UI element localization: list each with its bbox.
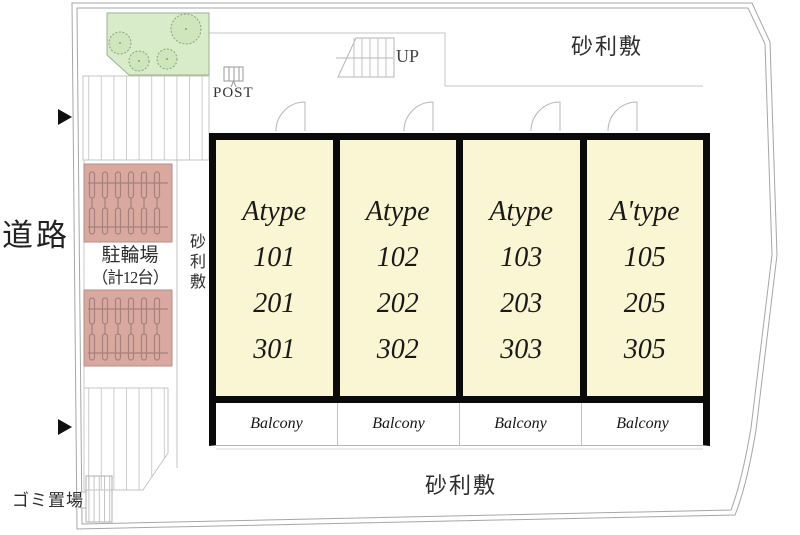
stairs-up-label: UP — [396, 46, 419, 67]
unit-cell-103: Atype 103 203 303 — [463, 140, 580, 396]
bike-rack-upper — [84, 164, 172, 242]
balcony-cell: Balcony — [216, 403, 338, 445]
site-plan: Atype 101 201 301 Atype 102 202 302 Atyp… — [0, 0, 800, 535]
building: Atype 101 201 301 Atype 102 202 302 Atyp… — [209, 133, 710, 403]
room-number: 201 — [253, 281, 295, 327]
door-arc-icon — [608, 102, 637, 131]
room-number: 102 — [377, 235, 419, 281]
bicycle-parking-label: 駐輪場 （計12台） — [83, 245, 177, 289]
road-label: 道路 — [2, 210, 70, 255]
balcony-strip: Balcony Balcony Balcony Balcony — [209, 403, 710, 446]
unit-type: Atype — [242, 189, 306, 235]
walkway-stripes-lower — [84, 388, 168, 490]
post-box-icon — [224, 67, 243, 87]
room-number: 305 — [624, 327, 666, 373]
gravel-label-side: 砂利敷 — [183, 233, 207, 293]
unit-type: Atype — [489, 189, 553, 235]
room-number: 103 — [500, 235, 542, 281]
room-number: 203 — [500, 281, 542, 327]
room-number: 101 — [253, 235, 295, 281]
room-number: 302 — [377, 327, 419, 373]
bicycle-parking-capacity: （計12台） — [83, 267, 177, 289]
entrance-arrow-icon — [58, 109, 72, 125]
bicycle-parking-title: 駐輪場 — [83, 245, 177, 267]
door-arcs — [276, 102, 637, 131]
room-number: 105 — [624, 235, 666, 281]
unit-type: A'type — [610, 189, 680, 235]
room-number: 303 — [500, 327, 542, 373]
room-number: 301 — [253, 327, 295, 373]
unit-cell-105: A'type 105 205 305 — [587, 140, 704, 396]
room-number: 205 — [624, 281, 666, 327]
door-arc-icon — [404, 102, 433, 131]
room-number: 202 — [377, 281, 419, 327]
door-arc-icon — [276, 102, 305, 131]
garbage-area-label: ゴミ置場 — [12, 486, 84, 511]
unit-cell-101: Atype 101 201 301 — [216, 140, 333, 396]
unit-cell-102: Atype 102 202 302 — [340, 140, 457, 396]
gravel-label-bottom: 砂利敷 — [425, 468, 497, 500]
balcony-cell: Balcony — [338, 403, 460, 445]
post-label: POST — [213, 85, 254, 102]
unit-type: Atype — [366, 189, 430, 235]
door-arc-icon — [531, 102, 560, 131]
balcony-cell: Balcony — [582, 403, 703, 445]
bike-rack-lower — [84, 290, 172, 366]
walkway-stripes-upper — [83, 76, 209, 160]
entrance-arrow-icon — [58, 419, 72, 435]
gravel-label-top: 砂利敷 — [571, 29, 643, 61]
garbage-hatch-box — [81, 476, 112, 522]
stairs-icon — [336, 38, 394, 77]
balcony-cell: Balcony — [460, 403, 582, 445]
